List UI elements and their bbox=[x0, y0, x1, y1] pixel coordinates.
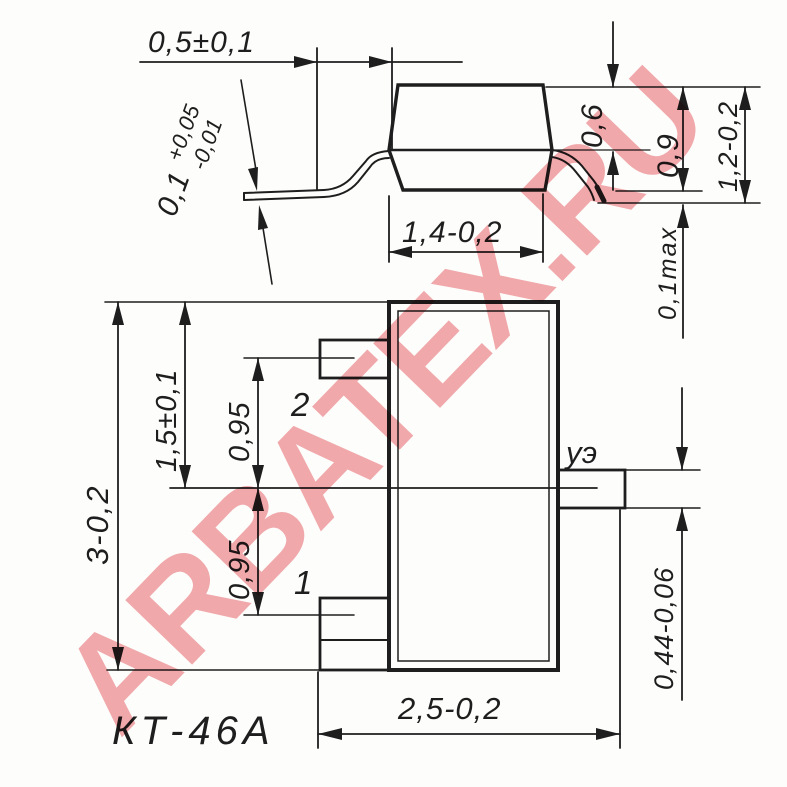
lead-2-tab bbox=[320, 340, 389, 378]
svg-text:0,1: 0,1 bbox=[151, 167, 197, 220]
dim-lead-thickness-label: 0,1 +0,05 -0,01 bbox=[143, 101, 229, 224]
lead-3-tab bbox=[558, 470, 625, 508]
arrowhead bbox=[676, 447, 688, 470]
arrowhead bbox=[607, 152, 619, 175]
dim-pitch-lower-label: 0,95 bbox=[224, 540, 256, 600]
arrowhead bbox=[677, 87, 689, 110]
arrowhead bbox=[252, 465, 264, 488]
dim-body-height-label: 0,9 bbox=[652, 133, 685, 178]
side-view: 0,5±0,1 0,1 +0,05 -0,01 1,4-0,2 bbox=[140, 22, 760, 338]
arrowhead bbox=[318, 728, 342, 740]
package-drawing-kt46a: 0,5±0,1 0,1 +0,05 -0,01 1,4-0,2 bbox=[0, 0, 787, 787]
dim-body-bottom-width-label: 1,4-0,2 bbox=[402, 216, 502, 249]
dim-body-length-label: 3-0,2 bbox=[80, 484, 115, 565]
side-body-outline bbox=[389, 85, 552, 190]
arrowhead bbox=[112, 647, 124, 670]
dim-total-height-label: 1,2-0,2 bbox=[713, 101, 743, 192]
lead-right-profile bbox=[552, 150, 604, 201]
dim-half-length-label: 1,5±0,1 bbox=[151, 368, 183, 472]
arrowhead bbox=[252, 358, 264, 381]
dim-pitch-upper-label: 0,95 bbox=[224, 402, 256, 462]
arrowhead bbox=[369, 56, 392, 68]
lead-1-tab bbox=[320, 598, 389, 670]
package-name-caption: КТ-46А bbox=[112, 709, 275, 753]
arrowhead bbox=[258, 205, 268, 230]
dim-lead-thickness-leader bbox=[241, 80, 272, 284]
pin-2-label: 2 bbox=[290, 386, 310, 423]
arrowhead bbox=[607, 64, 619, 87]
pin-3-label: уэ bbox=[564, 435, 597, 470]
arrowhead bbox=[248, 167, 258, 191]
bottom-body-outline bbox=[389, 302, 558, 670]
dim-standoff-label: 0,1max bbox=[654, 226, 682, 320]
bottom-view: 3-0,2 1,5±0,1 0,95 0,95 bbox=[80, 302, 700, 753]
arrowhead bbox=[252, 488, 264, 511]
bottom-body-inner-line bbox=[398, 311, 549, 661]
dim-lead-width-label: 0,44-0,06 bbox=[649, 567, 679, 690]
dim-total-width-label: 2,5-0,2 bbox=[397, 691, 502, 726]
arrowhead bbox=[179, 302, 191, 325]
arrowhead bbox=[677, 205, 689, 228]
arrowhead bbox=[112, 302, 124, 325]
pin-1-label: 1 bbox=[294, 564, 313, 601]
dim-body-top-half-label: 0,6 bbox=[576, 103, 609, 148]
arrowhead bbox=[596, 728, 620, 740]
arrowhead bbox=[676, 508, 688, 531]
arrowhead bbox=[520, 246, 543, 258]
dim-lead-length-label: 0,5±0,1 bbox=[148, 26, 255, 59]
arrowhead bbox=[294, 56, 317, 68]
